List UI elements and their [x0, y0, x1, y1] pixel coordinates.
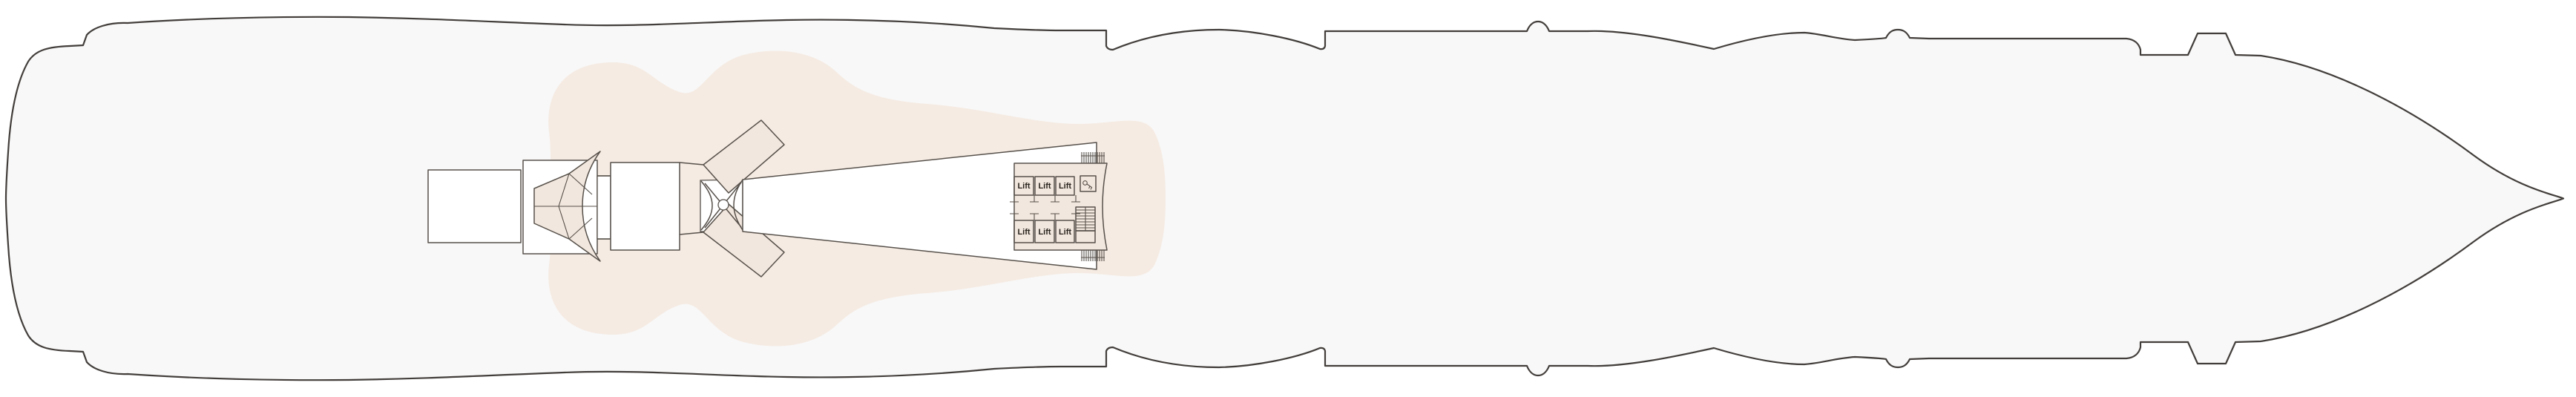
aft-deckhouse: [428, 170, 521, 243]
lift-label: Lift: [1059, 228, 1071, 237]
deck-plan: Lift Lift Lift Lift: [0, 0, 2576, 397]
lift-label: Lift: [1017, 182, 1030, 191]
midship-deckhouse: [611, 163, 680, 250]
mast-icon: [718, 200, 729, 210]
lift-label: Lift: [1038, 182, 1051, 191]
lift-label: Lift: [1017, 228, 1030, 237]
lift-label: Lift: [1038, 228, 1051, 237]
lift-label: Lift: [1059, 182, 1071, 191]
deck-plan-canvas: Lift Lift Lift Lift: [0, 0, 2576, 397]
lift-lobby: Lift Lift Lift Lift: [1010, 163, 1107, 250]
ship-hull-outline: [6, 17, 2563, 380]
connector-deck: [597, 176, 611, 239]
